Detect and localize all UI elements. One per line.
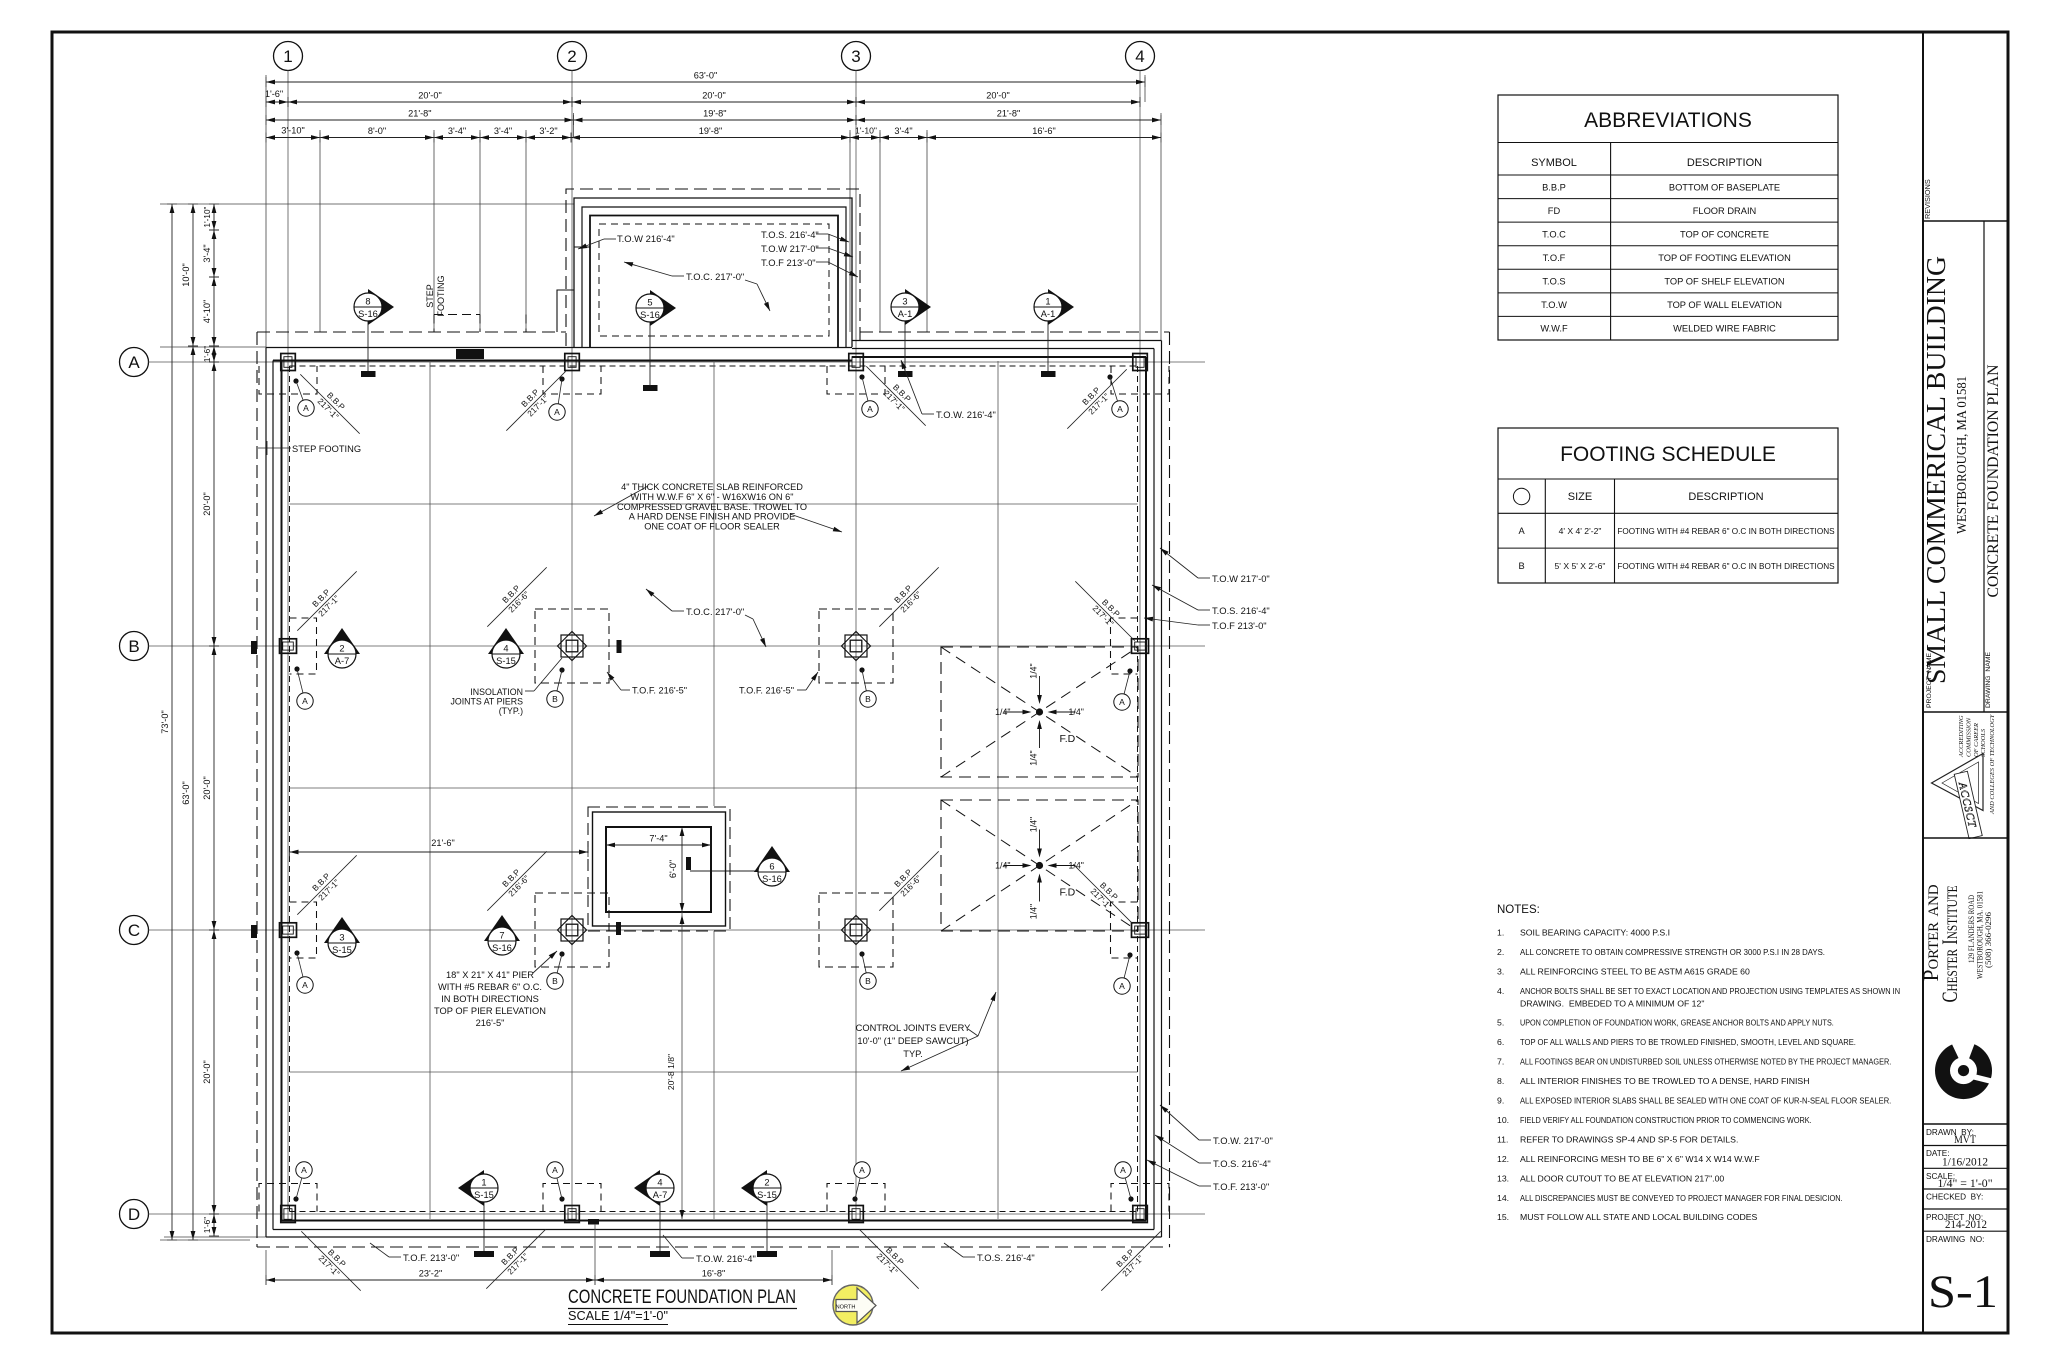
svg-text:TOP OF PIER ELEVATION: TOP OF PIER ELEVATION <box>434 1006 546 1016</box>
svg-text:T.O.W 217'-0": T.O.W 217'-0" <box>761 243 819 254</box>
svg-text:F.D: F.D <box>1060 733 1076 745</box>
svg-text:5.: 5. <box>1497 1018 1504 1028</box>
svg-text:4: 4 <box>1135 47 1144 66</box>
svg-text:FOOTING: FOOTING <box>436 276 446 317</box>
svg-text:T.O.F 213'-0": T.O.F 213'-0" <box>761 257 816 268</box>
svg-text:T.O.W: T.O.W <box>1541 300 1567 310</box>
svg-text:A: A <box>1518 526 1525 536</box>
svg-text:FIELD VERIFY ALL FOUNDATION CO: FIELD VERIFY ALL FOUNDATION CONSTRUCTION… <box>1520 1115 1812 1125</box>
svg-text:ALL DOOR CUTOUT TO BE AT ELEVA: ALL DOOR CUTOUT TO BE AT ELEVATION 217".… <box>1520 1173 1724 1183</box>
svg-text:ACCREDITING: ACCREDITING <box>1958 715 1965 758</box>
svg-text:10'-0": 10'-0" <box>181 263 191 286</box>
svg-text:T.O.S. 216'-4": T.O.S. 216'-4" <box>1213 1158 1271 1169</box>
svg-text:CONCRETE FOUNDATION PLAN: CONCRETE FOUNDATION PLAN <box>1985 365 2002 598</box>
svg-text:A-7: A-7 <box>335 656 349 666</box>
svg-text:F.D: F.D <box>1060 887 1076 899</box>
svg-text:B: B <box>128 637 139 656</box>
svg-text:A: A <box>554 407 560 417</box>
svg-text:6'-0": 6'-0" <box>668 860 678 878</box>
svg-text:DESCRIPTION: DESCRIPTION <box>1688 491 1763 503</box>
svg-text:T.O.F: T.O.F <box>1543 253 1566 263</box>
svg-text:9.: 9. <box>1497 1096 1504 1106</box>
svg-text:63'-0": 63'-0" <box>694 71 717 81</box>
svg-text:20'-0": 20'-0" <box>202 492 212 515</box>
svg-text:1: 1 <box>1045 297 1050 307</box>
svg-text:2: 2 <box>764 1178 769 1188</box>
svg-text:T.O.W 216'-4": T.O.W 216'-4" <box>617 233 675 244</box>
svg-text:20'-0": 20'-0" <box>202 1060 212 1083</box>
svg-text:OF CAREER: OF CAREER <box>1973 723 1980 757</box>
svg-text:1'-10": 1'-10" <box>203 206 212 227</box>
svg-text:A: A <box>1119 981 1125 991</box>
svg-text:14.: 14. <box>1497 1193 1509 1203</box>
svg-text:STEP FOOTING: STEP FOOTING <box>292 444 361 454</box>
svg-text:4' X 4' 2'-2": 4' X 4' 2'-2" <box>1559 526 1602 536</box>
svg-text:5: 5 <box>647 298 652 308</box>
svg-text:WITH W.W.F 6" X 6" - W16XW16 O: WITH W.W.F 6" X 6" - W16XW16 ON 6" <box>631 492 794 502</box>
svg-text:2: 2 <box>567 47 576 66</box>
svg-text:FLOOR DRAIN: FLOOR DRAIN <box>1693 206 1757 216</box>
svg-text:A: A <box>859 1165 865 1175</box>
svg-text:T.O.F. 213'-0": T.O.F. 213'-0" <box>403 1252 459 1263</box>
svg-text:2.: 2. <box>1497 947 1504 957</box>
svg-text:T.O.W. 217'-0": T.O.W. 217'-0" <box>1213 1135 1273 1146</box>
svg-text:A: A <box>1119 697 1125 707</box>
svg-text:18" X 21" X 41" PIER: 18" X 21" X 41" PIER <box>446 970 534 980</box>
svg-text:SYMBOL: SYMBOL <box>1531 157 1577 169</box>
svg-text:1: 1 <box>481 1178 486 1188</box>
svg-text:S-16: S-16 <box>358 309 378 319</box>
svg-text:214-2012: 214-2012 <box>1945 1217 1987 1231</box>
svg-text:8'-0": 8'-0" <box>368 126 386 136</box>
svg-text:S-16: S-16 <box>492 943 512 953</box>
svg-text:216'-5": 216'-5" <box>476 1018 505 1028</box>
svg-text:A: A <box>552 1165 558 1175</box>
svg-text:COMMISSION: COMMISSION <box>1965 717 1972 757</box>
svg-text:INSOLATION: INSOLATION <box>470 687 523 697</box>
svg-text:4.: 4. <box>1497 986 1504 996</box>
svg-text:6.: 6. <box>1497 1037 1504 1047</box>
svg-text:SIZE: SIZE <box>1568 491 1592 503</box>
svg-text:1/4" = 1'-0": 1/4" = 1'-0" <box>1938 1176 1993 1190</box>
svg-text:WITH #5 REBAR 6" O.C.: WITH #5 REBAR 6" O.C. <box>438 982 542 992</box>
svg-text:S-15: S-15 <box>496 656 516 666</box>
svg-text:12.: 12. <box>1497 1154 1509 1164</box>
svg-text:13.: 13. <box>1497 1173 1509 1183</box>
svg-text:WELDED WIRE FABRIC: WELDED WIRE FABRIC <box>1673 324 1776 334</box>
svg-text:NORTH: NORTH <box>836 1304 856 1310</box>
svg-text:ALL REINFORCING MESH TO BE 6": ALL REINFORCING MESH TO BE 6" X 6" W14 X… <box>1520 1154 1760 1164</box>
svg-text:B.B.P: B.B.P <box>1542 182 1566 192</box>
svg-text:B: B <box>552 976 558 986</box>
svg-text:3'-10": 3'-10" <box>281 126 304 136</box>
svg-text:6: 6 <box>769 862 774 872</box>
svg-text:SCALE 1/4"=1'-0": SCALE 1/4"=1'-0" <box>568 1309 668 1323</box>
svg-text:1/4": 1/4" <box>1069 707 1084 717</box>
svg-text:1'-6": 1'-6" <box>203 346 212 362</box>
svg-text:4" THICK CONCRETE SLAB REINFOR: 4" THICK CONCRETE SLAB REINFORCED <box>621 482 803 492</box>
svg-text:ALL CONCRETE TO OBTAIN COMPRES: ALL CONCRETE TO OBTAIN COMPRESSIVE STREN… <box>1520 947 1825 957</box>
svg-text:16'-6": 16'-6" <box>1032 126 1055 136</box>
svg-text:1/4": 1/4" <box>1029 904 1039 919</box>
svg-text:8: 8 <box>365 297 370 307</box>
svg-text:T.O.W 217'-0": T.O.W 217'-0" <box>1212 573 1270 584</box>
svg-text:C: C <box>128 921 140 940</box>
svg-text:B: B <box>1518 561 1524 571</box>
svg-text:73'-0": 73'-0" <box>160 710 170 733</box>
svg-text:FOOTING SCHEDULE: FOOTING SCHEDULE <box>1560 443 1776 466</box>
svg-text:CONTROL JOINTS EVERY: CONTROL JOINTS EVERY <box>856 1023 971 1033</box>
svg-text:ALL FOOTINGS BEAR ON UNDISTURB: ALL FOOTINGS BEAR ON UNDISTURBED SOIL UN… <box>1520 1057 1891 1067</box>
svg-text:S-15: S-15 <box>332 945 352 955</box>
svg-text:A-1: A-1 <box>898 309 912 319</box>
svg-text:4'-10": 4'-10" <box>202 300 212 323</box>
svg-text:FOOTING WITH #4 REBAR 6" O.C I: FOOTING WITH #4 REBAR 6" O.C IN BOTH DIR… <box>1617 562 1835 571</box>
svg-text:4: 4 <box>657 1178 662 1188</box>
svg-text:TYP.: TYP. <box>903 1049 922 1059</box>
svg-text:15.: 15. <box>1497 1212 1509 1222</box>
svg-text:3'-4": 3'-4" <box>894 126 912 136</box>
svg-text:1/4": 1/4" <box>1029 750 1039 765</box>
svg-text:3'-4": 3'-4" <box>202 244 212 262</box>
svg-text:S-16: S-16 <box>762 874 782 884</box>
svg-text:MUST FOLLOW ALL STATE AND LOCA: MUST FOLLOW ALL STATE AND LOCAL BUILDING… <box>1520 1212 1758 1222</box>
svg-text:10'-0" (1" DEEP SAWCUT): 10'-0" (1" DEEP SAWCUT) <box>857 1036 968 1046</box>
svg-text:REVISIONS: REVISIONS <box>1923 179 1932 219</box>
svg-text:1.: 1. <box>1497 928 1504 938</box>
svg-text:FD: FD <box>1548 206 1561 216</box>
svg-text:5' X 5' X 2'-6": 5' X 5' X 2'-6" <box>1555 561 1606 571</box>
svg-text:DRAWING NO:: DRAWING NO: <box>1926 1235 1984 1244</box>
svg-text:FOOTING WITH #4 REBAR 6" O.C I: FOOTING WITH #4 REBAR 6" O.C IN BOTH DIR… <box>1617 527 1835 536</box>
svg-text:S-15: S-15 <box>474 1190 494 1200</box>
svg-text:T.O.W. 216'-4": T.O.W. 216'-4" <box>936 409 996 420</box>
svg-text:Chester Institute: Chester Institute <box>1937 886 1962 1003</box>
svg-text:T.O.F 213'-0": T.O.F 213'-0" <box>1212 620 1267 631</box>
svg-text:S-1: S-1 <box>1928 1266 1998 1318</box>
svg-text:3'-2": 3'-2" <box>539 126 557 136</box>
svg-text:T.O.C: T.O.C <box>1542 229 1566 239</box>
svg-text:7: 7 <box>499 931 504 941</box>
svg-text:2: 2 <box>339 644 344 654</box>
svg-text:TOP OF ALL WALLS AND PIERS TO: TOP OF ALL WALLS AND PIERS TO BE TROWLED… <box>1520 1037 1856 1047</box>
svg-text:IN BOTH DIRECTIONS: IN BOTH DIRECTIONS <box>441 994 539 1004</box>
svg-text:3: 3 <box>902 297 907 307</box>
svg-text:19'-8": 19'-8" <box>703 109 726 119</box>
svg-text:8.: 8. <box>1497 1076 1504 1086</box>
svg-text:1'-6": 1'-6" <box>203 1217 212 1233</box>
svg-text:BOTTOM OF BASEPLATE: BOTTOM OF BASEPLATE <box>1669 182 1780 192</box>
svg-text:A: A <box>303 403 309 413</box>
svg-text:CHECKED BY:: CHECKED BY: <box>1926 1193 1983 1202</box>
svg-text:S-16: S-16 <box>640 310 660 320</box>
svg-text:T.O.F. 216'-5": T.O.F. 216'-5" <box>632 686 687 696</box>
svg-text:1: 1 <box>283 47 292 66</box>
svg-text:1/4": 1/4" <box>1029 663 1039 678</box>
svg-text:T.O.W. 216'-4": T.O.W. 216'-4" <box>696 1253 756 1264</box>
svg-text:DESCRIPTION: DESCRIPTION <box>1687 157 1762 169</box>
svg-text:A: A <box>128 353 140 372</box>
svg-text:TOP OF CONCRETE: TOP OF CONCRETE <box>1680 229 1769 239</box>
svg-text:A: A <box>1120 1165 1126 1175</box>
svg-text:B: B <box>865 694 871 704</box>
svg-text:TOP OF FOOTING ELEVATION: TOP OF FOOTING ELEVATION <box>1658 253 1791 263</box>
svg-text:T.O.F. 216'-5": T.O.F. 216'-5" <box>739 686 794 696</box>
svg-text:DRAWING NAME: DRAWING NAME <box>1985 652 1992 708</box>
svg-text:1/4": 1/4" <box>1069 861 1084 871</box>
svg-text:D: D <box>128 1205 140 1224</box>
svg-text:T.O.S. 216'-4": T.O.S. 216'-4" <box>1212 605 1270 616</box>
svg-text:MVT: MVT <box>1954 1132 1977 1146</box>
svg-text:S-15: S-15 <box>757 1190 777 1200</box>
svg-text:3.: 3. <box>1497 966 1504 976</box>
svg-text:SOIL BEARING CAPACITY: 4000 P.: SOIL BEARING CAPACITY: 4000 P.S.I <box>1520 928 1670 938</box>
svg-text:A-7: A-7 <box>653 1190 667 1200</box>
svg-text:WESTBOROUGH, MA 01581: WESTBOROUGH, MA 01581 <box>1954 376 1969 534</box>
svg-text:REFER TO DRAWINGS SP-4 AND SP-: REFER TO DRAWINGS SP-4 AND SP-5 FOR DETA… <box>1520 1134 1738 1144</box>
svg-text:3: 3 <box>339 933 344 943</box>
svg-text:ALL INTERIOR FINISHES TO BE TR: ALL INTERIOR FINISHES TO BE TROWLED TO A… <box>1520 1076 1809 1086</box>
svg-text:T.O.F. 213'-0": T.O.F. 213'-0" <box>1213 1181 1269 1192</box>
svg-text:20'-8 1/8": 20'-8 1/8" <box>666 1054 676 1090</box>
svg-text:21'-8": 21'-8" <box>408 109 431 119</box>
svg-text:21'-6": 21'-6" <box>431 838 454 848</box>
svg-text:T.O.S. 216'-4": T.O.S. 216'-4" <box>977 1252 1035 1263</box>
svg-text:TOP OF SHELF ELEVATION: TOP OF SHELF ELEVATION <box>1664 277 1784 287</box>
svg-text:20'-0": 20'-0" <box>202 776 212 799</box>
svg-text:JOINTS AT PIERS: JOINTS AT PIERS <box>450 697 523 707</box>
svg-text:COMPRESSED GRAVEL BASE. TROWEL: COMPRESSED GRAVEL BASE. TROWEL TO <box>617 502 807 512</box>
svg-text:7.: 7. <box>1497 1057 1504 1067</box>
svg-text:CONCRETE FOUNDATION PLAN: CONCRETE FOUNDATION PLAN <box>568 1286 796 1308</box>
svg-text:(TYP.): (TYP.) <box>499 706 523 716</box>
svg-text:SCHOOLS: SCHOOLS <box>1980 728 1987 757</box>
svg-text:T.O.S: T.O.S <box>1542 277 1565 287</box>
svg-text:A HARD DENSE FINISH AND PROVID: A HARD DENSE FINISH AND PROVIDE <box>629 512 795 522</box>
svg-text:63'-0": 63'-0" <box>181 781 191 804</box>
svg-text:7'-4": 7'-4" <box>649 834 667 844</box>
svg-text:TOP OF WALL ELEVATION: TOP OF WALL ELEVATION <box>1667 300 1782 310</box>
svg-text:T.O.S. 216'-4": T.O.S. 216'-4" <box>761 229 819 240</box>
svg-text:ABBREVIATIONS: ABBREVIATIONS <box>1584 109 1752 132</box>
svg-text:PROJECT NAME: PROJECT NAME <box>1926 653 1933 708</box>
svg-text:3'-4": 3'-4" <box>448 126 466 136</box>
svg-text:1/4": 1/4" <box>995 707 1010 717</box>
svg-text:A: A <box>1117 404 1123 414</box>
svg-text:ALL REINFORCING STEEL TO BE AS: ALL REINFORCING STEEL TO BE ASTM A615 GR… <box>1520 966 1750 976</box>
svg-text:B: B <box>552 694 558 704</box>
svg-text:A: A <box>867 404 873 414</box>
svg-text:T.O.C. 217'-0": T.O.C. 217'-0" <box>686 606 744 617</box>
svg-text:A: A <box>302 696 308 706</box>
svg-text:ALL DISCREPANCIES MUST BE CONV: ALL DISCREPANCIES MUST BE CONVEYED TO PR… <box>1520 1193 1843 1203</box>
svg-text:NOTES:: NOTES: <box>1497 904 1540 916</box>
svg-text:1/16/2012: 1/16/2012 <box>1942 1155 1988 1169</box>
svg-text:ONE COAT OF FLOOR SEALER: ONE COAT OF FLOOR SEALER <box>644 522 780 532</box>
svg-text:10.: 10. <box>1497 1115 1509 1125</box>
svg-text:A-1: A-1 <box>1041 309 1055 319</box>
svg-text:W.W.F: W.W.F <box>1540 324 1568 334</box>
svg-text:16'-8": 16'-8" <box>702 1269 725 1279</box>
svg-text:20'-0": 20'-0" <box>702 91 725 101</box>
svg-text:T.O.C. 217'-0": T.O.C. 217'-0" <box>686 271 744 282</box>
svg-text:AND COLLEGES OF TECHNOLOGY: AND COLLEGES OF TECHNOLOGY <box>1989 713 1996 815</box>
svg-text:STEP: STEP <box>425 284 435 308</box>
svg-text:20'-0": 20'-0" <box>986 91 1009 101</box>
svg-text:1/4": 1/4" <box>995 861 1010 871</box>
svg-text:11.: 11. <box>1497 1134 1508 1144</box>
svg-text:23'-2": 23'-2" <box>419 1269 442 1279</box>
svg-text:(508) 366-0296: (508) 366-0296 <box>1983 911 1993 968</box>
svg-text:4: 4 <box>503 644 508 654</box>
svg-text:1/4": 1/4" <box>1029 817 1039 832</box>
svg-text:3: 3 <box>851 47 860 66</box>
svg-text:ALL EXPOSED INTERIOR SLABS SHA: ALL EXPOSED INTERIOR SLABS SHALL BE SEAL… <box>1520 1096 1891 1106</box>
svg-text:A: A <box>302 980 308 990</box>
svg-text:1'-6": 1'-6" <box>265 89 283 99</box>
svg-text:ANCHOR BOLTS SHALL BE SET TO E: ANCHOR BOLTS SHALL BE SET TO EXACT LOCAT… <box>1520 986 1900 996</box>
svg-text:SMALL COMMERICAL BUILDING: SMALL COMMERICAL BUILDING <box>1920 256 1951 684</box>
svg-text:UPON COMPLETION OF FOUNDATION: UPON COMPLETION OF FOUNDATION WORK, GREA… <box>1520 1018 1834 1028</box>
svg-text:3'-4": 3'-4" <box>494 126 512 136</box>
svg-text:DRAWING. EMBEDED TO A MINIMUM: DRAWING. EMBEDED TO A MINIMUM OF 12" <box>1520 998 1704 1008</box>
svg-text:20'-0": 20'-0" <box>418 91 441 101</box>
svg-text:1'-10": 1'-10" <box>855 126 877 136</box>
svg-text:19'-8": 19'-8" <box>699 126 722 136</box>
svg-text:B: B <box>865 976 871 986</box>
svg-text:21'-8": 21'-8" <box>997 109 1020 119</box>
svg-text:A: A <box>301 1165 307 1175</box>
